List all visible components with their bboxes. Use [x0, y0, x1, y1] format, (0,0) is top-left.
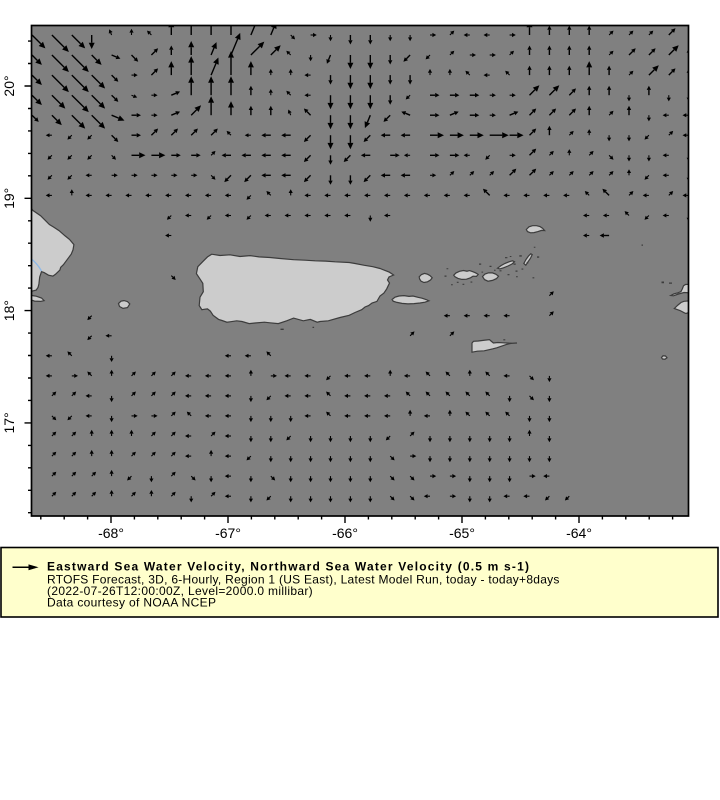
- svg-text:17°: 17°: [1, 412, 17, 433]
- svg-text:Eastward Sea Water Velocity, N: Eastward Sea Water Velocity, Northward S…: [47, 560, 530, 574]
- svg-text:-68°: -68°: [98, 525, 124, 541]
- svg-text:Data courtesy of NOAA NCEP: Data courtesy of NOAA NCEP: [47, 596, 216, 610]
- svg-text:-65°: -65°: [449, 525, 475, 541]
- svg-text:19°: 19°: [1, 188, 17, 209]
- svg-text:20°: 20°: [1, 75, 17, 96]
- svg-text:-64°: -64°: [566, 525, 592, 541]
- svg-text:-66°: -66°: [332, 525, 358, 541]
- svg-text:-67°: -67°: [215, 525, 241, 541]
- svg-text:18°: 18°: [1, 300, 17, 321]
